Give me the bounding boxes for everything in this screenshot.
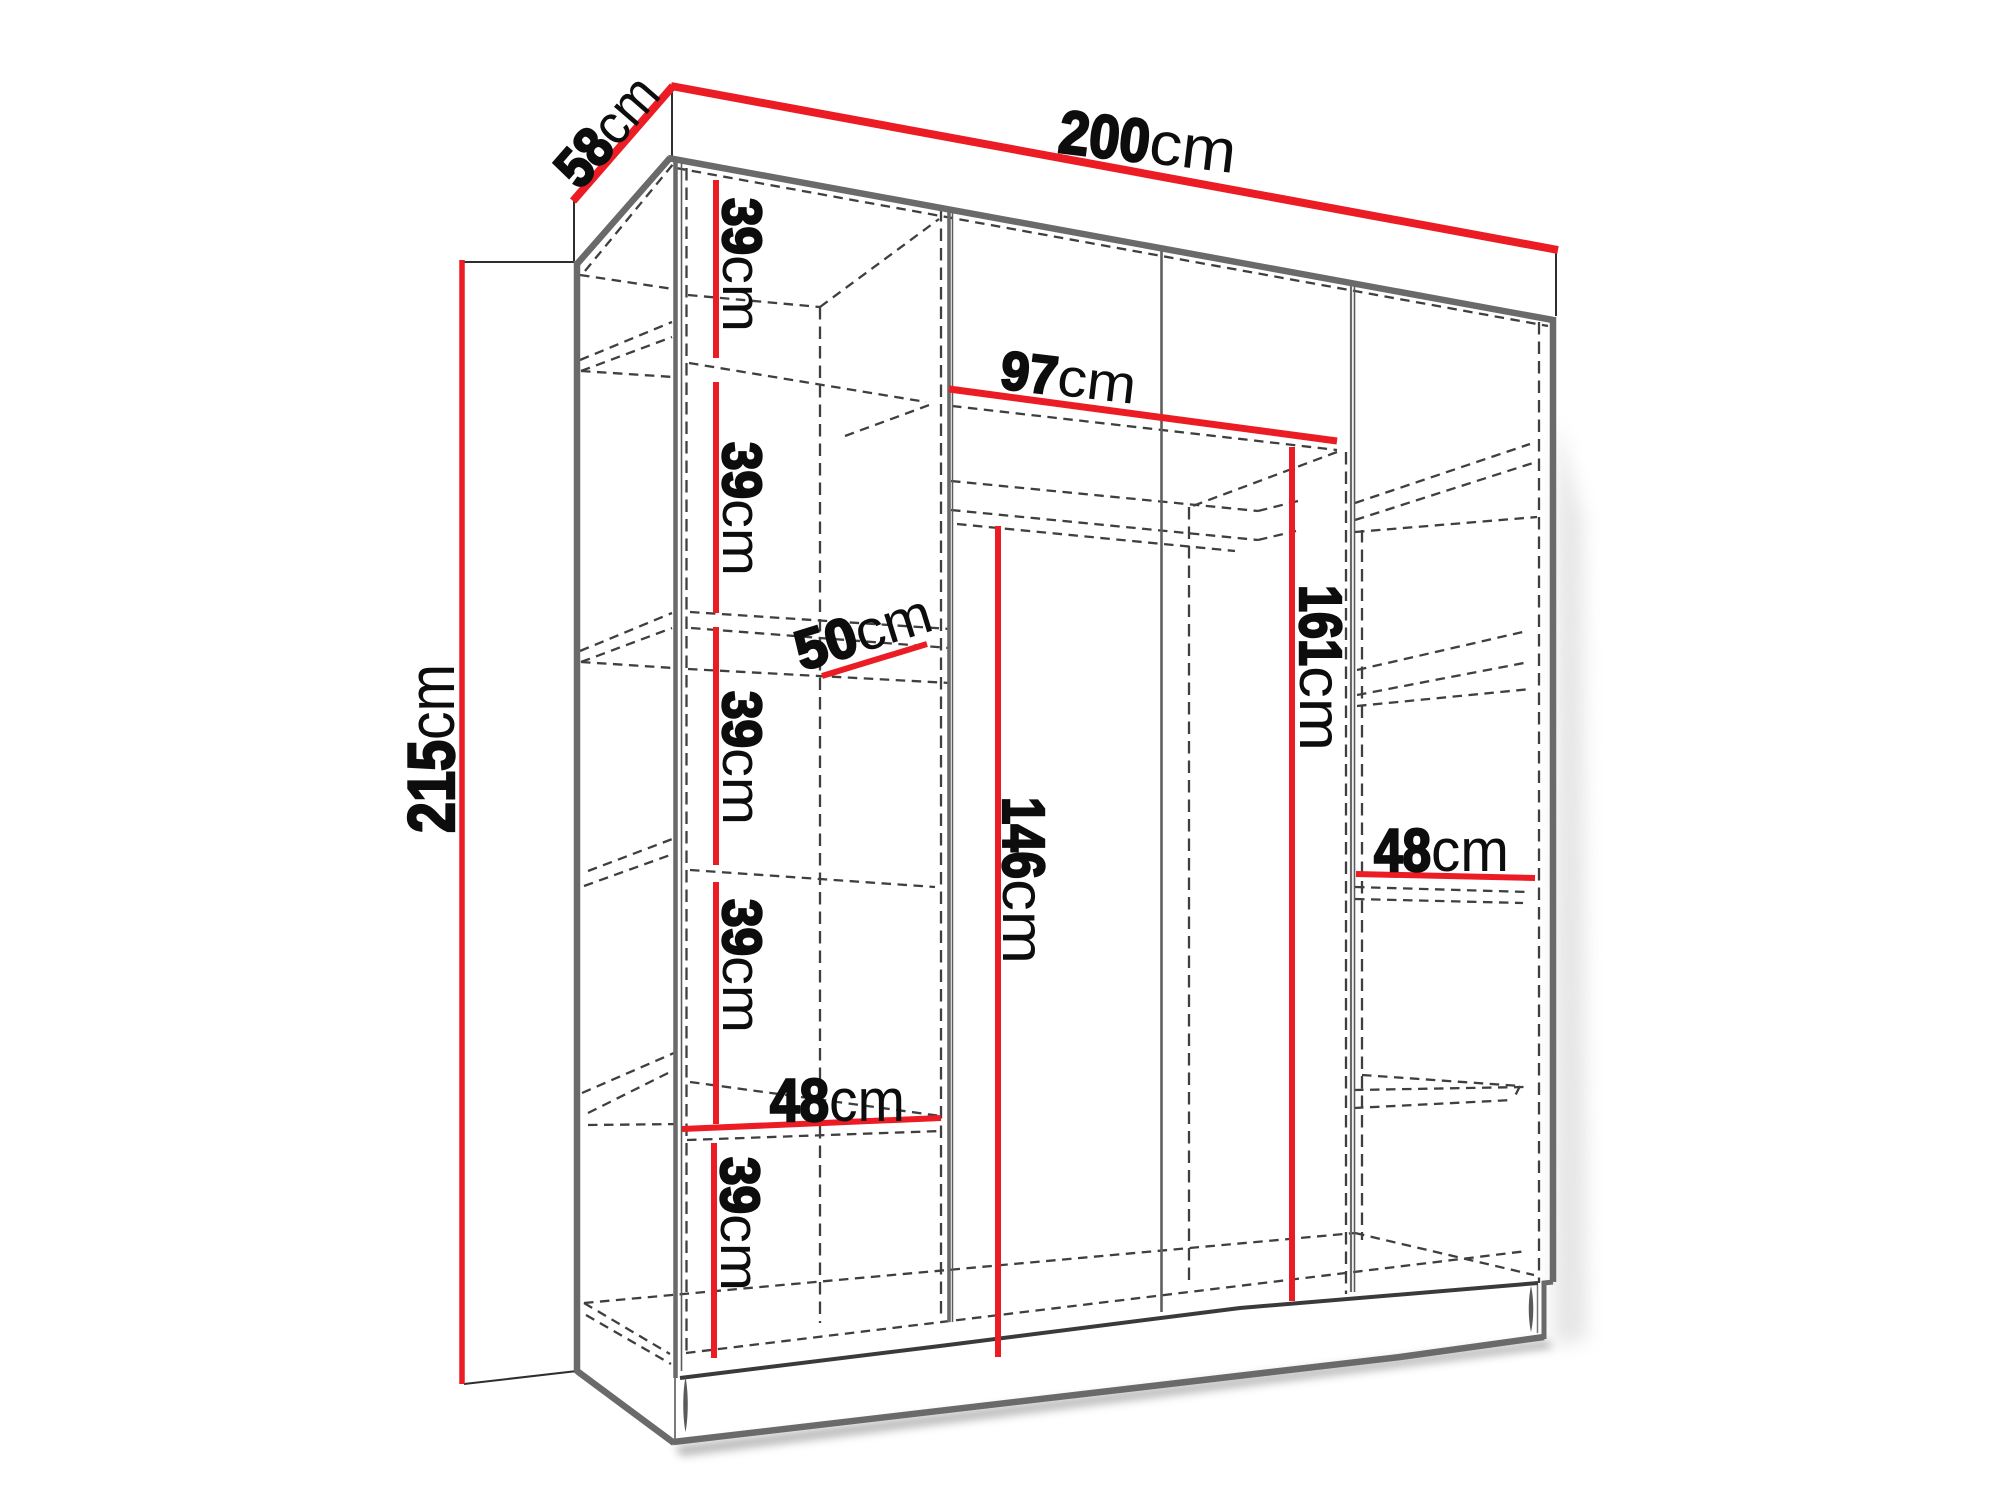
svg-text:39cm: 39cm [711, 198, 773, 332]
svg-text:39cm: 39cm [711, 691, 773, 825]
svg-text:48cm: 48cm [770, 1067, 905, 1134]
svg-text:146cm: 146cm [990, 797, 1056, 964]
svg-text:161cm: 161cm [1287, 585, 1353, 751]
svg-text:39cm: 39cm [709, 1157, 771, 1291]
svg-text:39cm: 39cm [711, 442, 773, 576]
svg-text:48cm: 48cm [1374, 817, 1509, 884]
svg-text:39cm: 39cm [711, 899, 773, 1033]
svg-text:215cm: 215cm [394, 664, 468, 833]
